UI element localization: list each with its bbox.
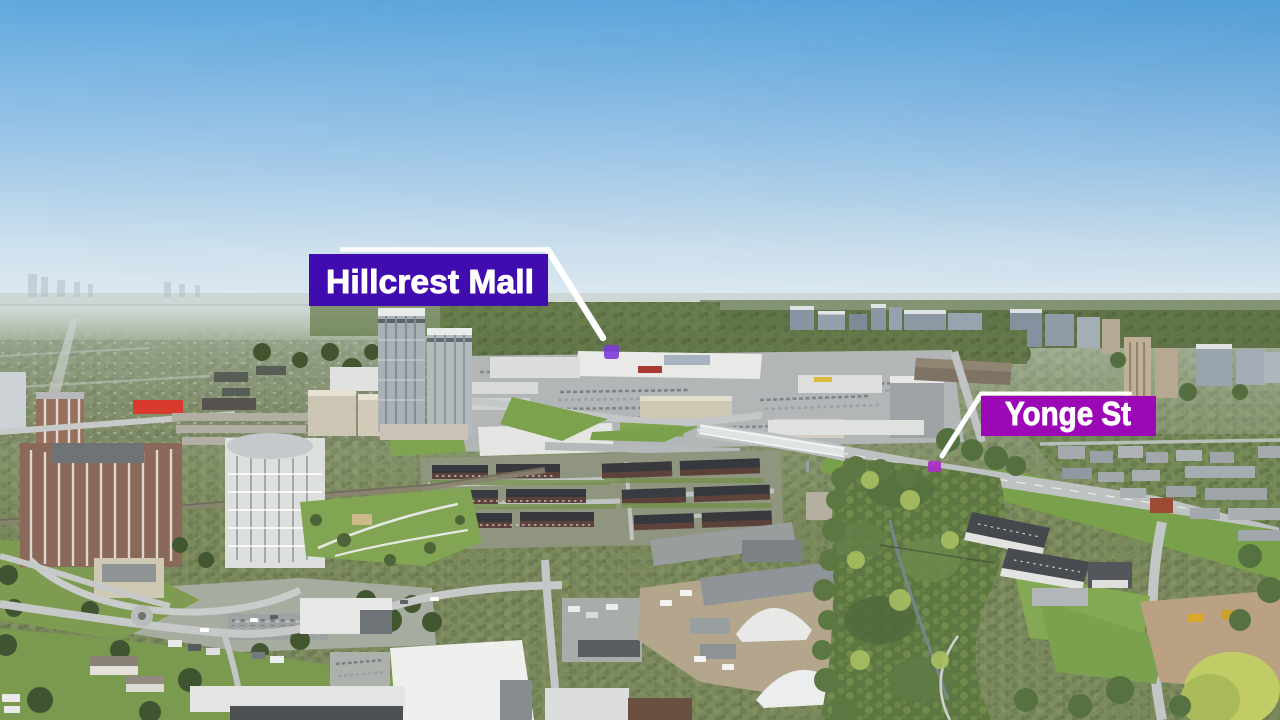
svg-text:Hillcrest Mall: Hillcrest Mall — [326, 263, 534, 300]
svg-text:Yonge St: Yonge St — [1005, 395, 1131, 432]
